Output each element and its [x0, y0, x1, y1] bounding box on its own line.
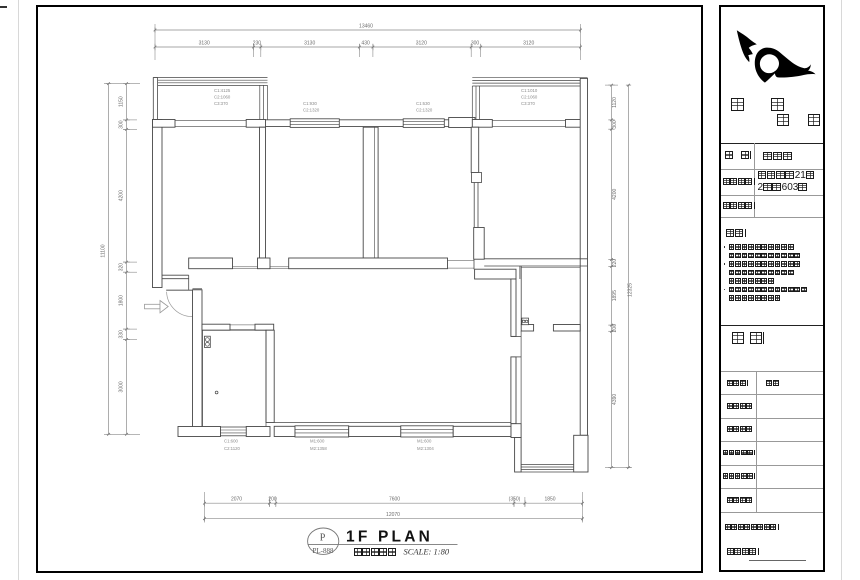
svg-text:C1:600: C1:600 — [224, 439, 238, 444]
svg-text:12070: 12070 — [386, 512, 400, 518]
svg-text:3120: 3120 — [416, 41, 427, 47]
svg-text:4200: 4200 — [119, 190, 125, 201]
svg-text:1895: 1895 — [612, 290, 618, 301]
svg-text:C3:370: C3:370 — [214, 101, 228, 106]
svg-text:M1:600: M1:600 — [310, 439, 325, 444]
svg-text:M2:1358: M2:1358 — [310, 446, 327, 451]
svg-text:230: 230 — [253, 41, 262, 47]
svg-text:13460: 13460 — [359, 24, 373, 30]
svg-text:330: 330 — [119, 330, 125, 339]
svg-text:3130: 3130 — [304, 41, 315, 47]
svg-text:C1:630: C1:630 — [416, 101, 430, 106]
svg-text:200: 200 — [612, 324, 618, 333]
svg-text:C2:1120: C2:1120 — [224, 446, 241, 451]
svg-text:300: 300 — [119, 120, 125, 129]
svg-text:C1:930: C1:930 — [303, 101, 317, 106]
svg-text:M1:600: M1:600 — [417, 439, 432, 444]
svg-text:7600: 7600 — [389, 496, 400, 502]
svg-text:C2:1060: C2:1060 — [521, 95, 538, 100]
svg-text:3120: 3120 — [523, 41, 534, 47]
svg-text:1850: 1850 — [544, 496, 555, 502]
svg-text:C1:4125: C1:4125 — [214, 88, 231, 93]
svg-text:C2:1320: C2:1320 — [303, 108, 320, 113]
svg-text:300: 300 — [612, 120, 618, 129]
svg-text:3130: 3130 — [199, 41, 210, 47]
svg-text:300: 300 — [471, 41, 480, 47]
svg-text:1150: 1150 — [119, 96, 125, 107]
svg-text:P: P — [320, 533, 326, 544]
svg-text:2070: 2070 — [231, 496, 242, 502]
svg-text:C2:1320: C2:1320 — [416, 108, 433, 113]
svg-text:PL-888: PL-888 — [313, 547, 335, 555]
svg-text:430: 430 — [361, 41, 370, 47]
svg-text:C2:1060: C2:1060 — [214, 95, 231, 100]
svg-text:M2:1304: M2:1304 — [417, 446, 434, 451]
svg-text:220: 220 — [612, 259, 618, 268]
svg-text:11100: 11100 — [101, 244, 107, 257]
svg-text:(350): (350) — [509, 496, 521, 502]
svg-text:1800: 1800 — [119, 295, 125, 306]
svg-text:4390: 4390 — [612, 394, 618, 405]
svg-text:C1:1010: C1:1010 — [521, 88, 538, 93]
svg-text:1F PLAN: 1F PLAN — [346, 529, 433, 546]
svg-text:SCALE: 1:80: SCALE: 1:80 — [404, 547, 450, 557]
svg-text:3000: 3000 — [119, 381, 125, 392]
svg-text:4200: 4200 — [612, 189, 618, 200]
svg-text:12325: 12325 — [628, 283, 634, 297]
svg-text:C3:370: C3:370 — [521, 101, 535, 106]
svg-text:1120: 1120 — [612, 97, 618, 108]
svg-text:200: 200 — [268, 496, 277, 502]
svg-text:320: 320 — [119, 263, 125, 272]
